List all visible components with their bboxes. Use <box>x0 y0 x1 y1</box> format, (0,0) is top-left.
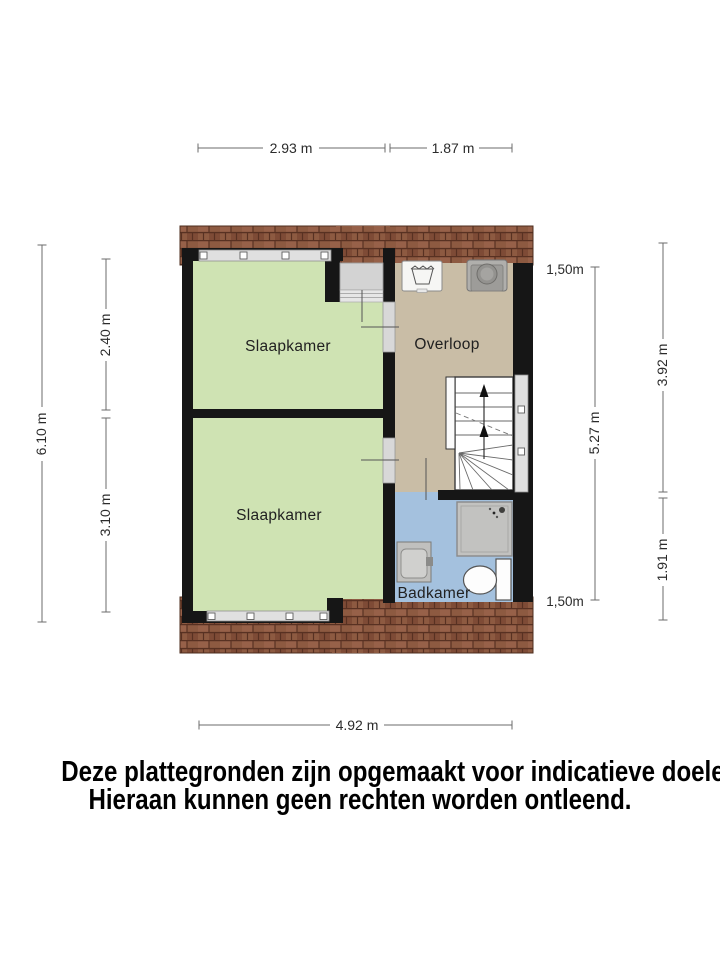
svg-text:1.91 m: 1.91 m <box>654 539 670 582</box>
knee-wall-label-top: 1,50m <box>546 262 584 277</box>
wall-right-lower <box>513 490 533 602</box>
floorplan-page: Slaapkamer Overloop Slaapkamer Badkamer … <box>0 0 720 960</box>
wall-bathroom-left <box>383 483 395 603</box>
disclaimer-line2: Hieraan kunnen geen rechten worden ontle… <box>61 786 659 814</box>
dimension-top-bedrooms: 2.93 m <box>198 140 385 156</box>
room-label-bathroom: Badkamer <box>397 585 470 602</box>
dimension-bottom-total: 4.92 m <box>199 717 512 733</box>
dimension-right-landing: 3.92 m <box>654 243 670 492</box>
window-bedroom-top <box>199 250 331 261</box>
wall-right-upper <box>513 263 533 377</box>
dimension-left-bedroom-bottom: 3.10 m <box>97 418 113 612</box>
svg-text:5.27 m: 5.27 m <box>586 412 602 455</box>
dryer-icon <box>467 260 507 291</box>
dimension-right-bathroom: 1.91 m <box>654 498 670 620</box>
wall-left <box>182 248 193 623</box>
room-label-landing: Overloop <box>414 336 479 353</box>
room-label-bedroom-top: Slaapkamer <box>245 338 331 355</box>
svg-text:3.92 m: 3.92 m <box>654 344 670 387</box>
disclaimer-line1: Deze plattegronden zijn opgemaakt voor i… <box>61 758 659 786</box>
svg-text:2.93 m: 2.93 m <box>270 140 313 156</box>
dimension-left-bedroom-top: 2.40 m <box>97 259 113 410</box>
floorplan-drawing: Slaapkamer Overloop Slaapkamer Badkamer … <box>0 0 720 748</box>
wall-closet-right <box>383 248 395 302</box>
disclaimer: Deze plattegronden zijn opgemaakt voor i… <box>0 758 720 814</box>
stair-handrail <box>446 377 455 449</box>
window-bedroom-bottom <box>207 611 329 621</box>
dimension-top-landing: 1.87 m <box>390 140 512 156</box>
staircase <box>446 377 513 490</box>
window-stairwell <box>515 375 528 492</box>
dimension-right-inner: 5.27 m <box>586 267 602 600</box>
shower-icon <box>457 502 512 556</box>
room-label-bedroom-bottom: Slaapkamer <box>236 507 322 524</box>
svg-text:6.10 m: 6.10 m <box>33 413 49 456</box>
svg-text:1.87 m: 1.87 m <box>432 140 475 156</box>
wall-between-bedrooms <box>182 409 395 418</box>
svg-text:3.10 m: 3.10 m <box>97 494 113 537</box>
svg-text:4.92 m: 4.92 m <box>336 717 379 733</box>
wall-bedroom-landing <box>383 352 395 438</box>
knee-wall-label-bottom: 1,50m <box>546 594 584 609</box>
washing-machine-icon <box>402 261 442 293</box>
washbasin-icon <box>397 542 433 582</box>
dimension-left-total: 6.10 m <box>33 245 49 622</box>
wall-bathroom-top <box>438 490 513 500</box>
svg-text:2.40 m: 2.40 m <box>97 314 113 357</box>
